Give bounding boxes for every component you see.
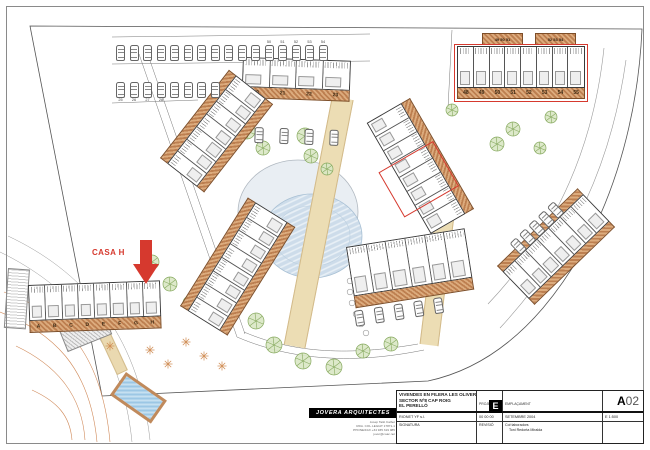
- unit-number: C: [63, 319, 80, 331]
- parking-stall: [197, 40, 206, 61]
- car-icon: [354, 310, 365, 327]
- car-icon: [319, 45, 328, 61]
- house-unit: [243, 58, 270, 87]
- car-icon: [304, 129, 314, 145]
- car-icon: [211, 45, 220, 61]
- parking-stall: 26: [130, 82, 139, 103]
- parking-stall: [238, 40, 247, 61]
- car-icon: [265, 45, 274, 61]
- tree-icon: [490, 137, 504, 151]
- car-icon: [170, 45, 179, 61]
- house-unit: [110, 283, 127, 318]
- car-icon: [130, 45, 139, 61]
- car-icon: [116, 45, 125, 61]
- tree-icon: [506, 122, 520, 136]
- parking-stall: 52: [292, 40, 301, 61]
- parking-stall: [130, 40, 139, 61]
- car-icon: [374, 306, 385, 323]
- car-icon: [254, 127, 264, 143]
- car-icon: [116, 82, 125, 98]
- unit-number: E: [95, 318, 112, 330]
- car-icon: [184, 82, 193, 98]
- house-row: [242, 57, 351, 91]
- sheet-code: A02: [603, 391, 643, 411]
- logo-bar: JOVERA ARQUITECTES: [309, 408, 397, 418]
- shrub-icon: [200, 352, 209, 361]
- logo-line: jover@coac.net: [309, 432, 395, 436]
- project-title: VIVENDES EN FILERA LES OLIVERES SECTOR N…: [397, 391, 477, 411]
- tree-icon: [304, 149, 318, 163]
- parking-row-2: 25262728: [116, 82, 220, 103]
- car-icon: [130, 82, 139, 98]
- house-unit: [126, 282, 143, 317]
- parking-stall: [224, 40, 233, 61]
- driveway-cars-top-center: [254, 122, 339, 146]
- parking-stall: [329, 125, 339, 146]
- car-icon: [197, 45, 206, 61]
- date-text: SETEMBRE 2004: [503, 413, 603, 421]
- site-plan-sheet: 49 50 51 52 53 54 CASA H JOVERA ARQUITEC…: [0, 0, 650, 450]
- stall-number: 28: [159, 98, 163, 103]
- shrub-icon: [146, 346, 155, 355]
- shrub-icon: [182, 338, 191, 347]
- parking-stall: 25: [116, 82, 125, 103]
- car-icon: [157, 82, 166, 98]
- car-icon: [157, 45, 166, 61]
- promoter: RIONET YF s.l.: [397, 413, 477, 421]
- tree-icon: [545, 111, 557, 123]
- car-icon: [197, 82, 206, 98]
- parking-stall: [254, 122, 264, 143]
- parking-stall: [211, 40, 220, 61]
- car-icon: [143, 45, 152, 61]
- house-unit: [269, 59, 296, 88]
- tree-icon: [321, 163, 333, 175]
- shrub-icon: [164, 360, 173, 369]
- house-unit: [94, 283, 111, 318]
- car-icon: [393, 303, 404, 320]
- house-unit: [45, 285, 62, 320]
- parking-stall: [211, 82, 220, 103]
- parking-stall: [353, 305, 365, 327]
- parking-stall: [184, 40, 193, 61]
- house-unit: [296, 60, 323, 89]
- parking-stall: [143, 40, 152, 61]
- unit-number: 22: [296, 89, 323, 100]
- parking-stall: 54: [319, 40, 328, 61]
- signatura-label: SIGNATURA: [397, 422, 477, 443]
- empty-cell: [603, 422, 643, 443]
- parking-stall: [251, 40, 260, 61]
- arrow-shaft: [140, 240, 152, 266]
- casa-h-arrow-icon: [133, 240, 159, 286]
- parking-stall: [157, 40, 166, 61]
- emplacament-label: EMPLAÇAMENT: [505, 402, 531, 406]
- parking-stall: [184, 82, 193, 103]
- tree-icon: [446, 104, 458, 116]
- shrub-icon: [106, 342, 115, 351]
- parking-stall: 50: [265, 40, 274, 61]
- arrow-head: [133, 264, 159, 284]
- car-icon: [238, 45, 247, 61]
- garage-numbers: 52 53 54: [548, 37, 564, 42]
- car-icon: [184, 45, 193, 61]
- house-unit: [78, 284, 95, 319]
- car-icon: [278, 45, 287, 61]
- project-line: VIVENDES EN FILERA LES OLIVERES: [399, 392, 474, 398]
- stall-number: 25: [118, 98, 122, 103]
- date-code: 00 00 00: [477, 413, 503, 421]
- logo-contact: Josep Tailó Calbet RDA. COL·LEGIAT 17871…: [309, 420, 397, 437]
- parking-stall: [393, 298, 405, 320]
- revisio-label: REVISIÓ: [477, 422, 503, 443]
- car-icon: [211, 82, 220, 98]
- shrub-icon: [218, 362, 227, 371]
- tree-icon: [384, 337, 398, 351]
- car-icon: [292, 45, 301, 61]
- collaborators: Col·laboradors Toni Redorta Miralda: [503, 422, 603, 443]
- unit-number: B: [46, 320, 63, 332]
- car-icon: [279, 128, 289, 144]
- tree-icon: [326, 359, 342, 375]
- highlight-box-top-right: [454, 44, 588, 102]
- house-unit: [322, 61, 349, 90]
- parking-stall: 51: [278, 40, 287, 61]
- tree-icon: [248, 313, 264, 329]
- parking-stall: [279, 123, 289, 144]
- tree-icon: [163, 277, 177, 291]
- unit-number: 23: [322, 90, 349, 101]
- tree-icon: [534, 142, 546, 154]
- scale-text: E 1:500: [603, 413, 643, 421]
- parking-stall: [197, 82, 206, 103]
- band-cell: [452, 278, 473, 292]
- tree-icon: [356, 344, 370, 358]
- parking-stall: 27: [143, 82, 152, 103]
- house-unit: [143, 281, 160, 316]
- parking-stall: [412, 295, 424, 317]
- house-row: [28, 280, 161, 321]
- tree-icon: [266, 337, 282, 353]
- garage-numbers: 49 50 51: [495, 37, 511, 42]
- car-icon: [329, 130, 339, 146]
- unit-number: F: [111, 318, 128, 330]
- car-icon: [224, 45, 233, 61]
- parking-stall: 28: [157, 82, 166, 103]
- house-unit: [62, 284, 79, 319]
- parking-stall: [116, 40, 125, 61]
- stall-number: 27: [145, 98, 149, 103]
- unit-number: H: [144, 316, 161, 328]
- unit-number: D: [79, 319, 96, 331]
- car-icon: [143, 82, 152, 98]
- tree-icon: [295, 353, 311, 369]
- unit-number: 21: [269, 88, 296, 99]
- title-block: VIVENDES EN FILERA LES OLIVERES SECTOR N…: [396, 390, 644, 444]
- parking-stall: 53: [305, 40, 314, 61]
- block-letters: ABCDEFGH: [28, 280, 162, 333]
- car-icon: [170, 82, 179, 98]
- unit-number: G: [128, 317, 145, 329]
- parking-stall: [373, 301, 385, 323]
- car-icon: [413, 300, 424, 317]
- casa-h-label: CASA H: [92, 248, 125, 257]
- house-unit: [29, 285, 46, 320]
- car-icon: [305, 45, 314, 61]
- stall-number: 26: [132, 98, 136, 103]
- project-line: EL PERELLÓ: [399, 403, 474, 409]
- collab-name: Toni Redorta Miralda: [505, 428, 600, 433]
- architect-logo: JOVERA ARQUITECTES Josep Tailó Calbet RD…: [309, 408, 397, 437]
- car-icon: [251, 45, 260, 61]
- parking-stall: [304, 124, 314, 145]
- unit-number: A: [30, 320, 47, 332]
- parking-row-1: 5051525354: [116, 40, 328, 61]
- parking-stall: [170, 82, 179, 103]
- parking-stall: [170, 40, 179, 61]
- e-badge: E: [489, 400, 502, 413]
